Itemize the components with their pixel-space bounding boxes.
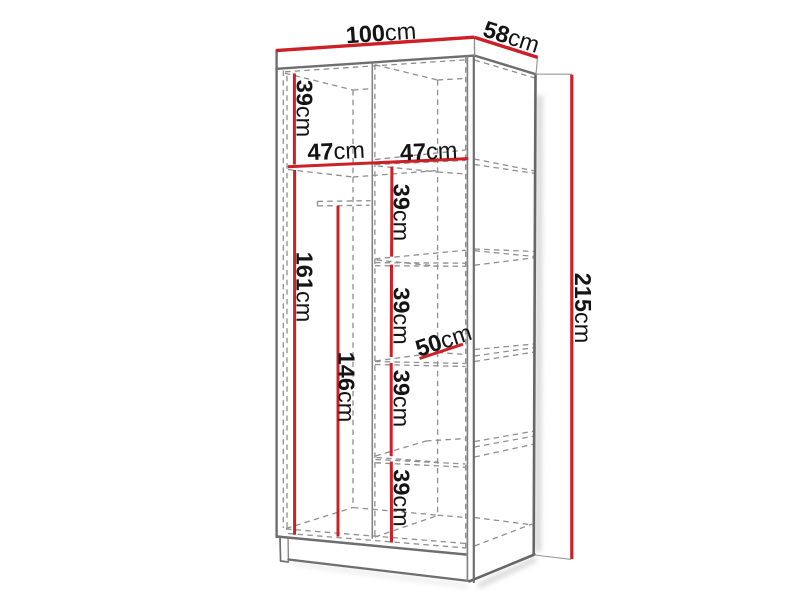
svg-text:161cm: 161cm	[292, 252, 318, 323]
svg-text:39cm: 39cm	[389, 287, 415, 344]
svg-text:47cm: 47cm	[399, 137, 458, 166]
svg-text:39cm: 39cm	[389, 184, 415, 241]
svg-text:39cm: 39cm	[292, 80, 318, 137]
svg-text:39cm: 39cm	[389, 469, 415, 526]
svg-text:146cm: 146cm	[334, 352, 360, 423]
svg-text:47cm: 47cm	[307, 137, 366, 166]
svg-text:100cm: 100cm	[345, 18, 417, 49]
svg-text:215cm: 215cm	[570, 273, 596, 344]
svg-text:39cm: 39cm	[389, 370, 415, 427]
